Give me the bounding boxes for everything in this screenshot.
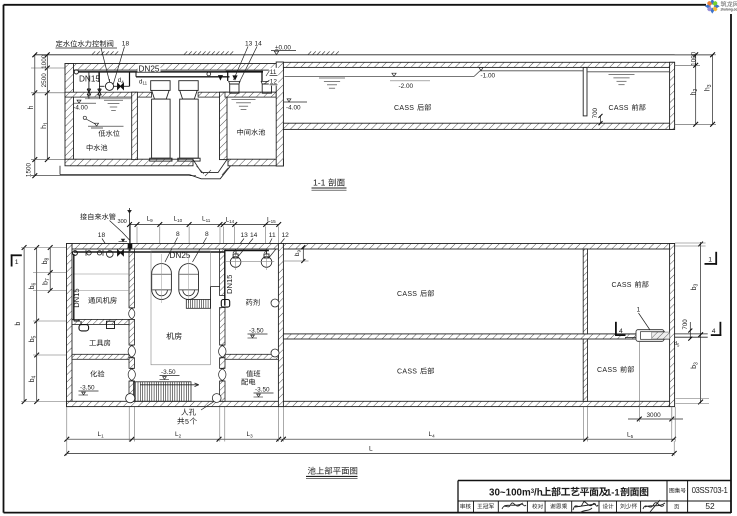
svg-text:30~100m3/h: 30~100m3/h (489, 487, 543, 498)
svg-text:2500: 2500 (41, 73, 48, 88)
svg-text:-3.50: -3.50 (80, 385, 95, 392)
svg-text:CASS: CASS (397, 291, 417, 298)
svg-text:18: 18 (98, 232, 106, 239)
svg-text:8: 8 (176, 231, 180, 238)
svg-text:1-1: 1-1 (606, 486, 620, 497)
svg-text:52: 52 (705, 501, 715, 511)
svg-text:CASS: CASS (609, 105, 629, 112)
svg-text:zhulong.com: zhulong.com (721, 7, 737, 11)
svg-text:11: 11 (270, 69, 277, 76)
svg-text:5: 5 (185, 419, 189, 426)
svg-text:CASS: CASS (597, 367, 617, 374)
svg-text:1-1: 1-1 (313, 178, 326, 188)
svg-text:1: 1 (708, 256, 712, 263)
svg-text:DN15: DN15 (79, 74, 100, 83)
svg-text:d5: d5 (674, 341, 680, 347)
svg-text:CASS: CASS (397, 369, 417, 376)
svg-text:4: 4 (712, 328, 716, 335)
svg-text:-3.50: -3.50 (255, 387, 270, 394)
svg-text:13: 13 (245, 40, 253, 47)
svg-text:-4.00: -4.00 (286, 105, 301, 112)
svg-text:700: 700 (592, 107, 599, 118)
svg-text:L: L (369, 446, 373, 453)
svg-text:DN15: DN15 (72, 288, 81, 307)
svg-text:03SS703-1: 03SS703-1 (692, 486, 728, 495)
svg-text:1: 1 (15, 259, 19, 266)
svg-text:14: 14 (250, 232, 258, 239)
svg-text:18: 18 (122, 40, 130, 47)
svg-text:1500: 1500 (25, 162, 32, 177)
svg-text:h: h (28, 105, 35, 109)
svg-text:13: 13 (241, 232, 249, 239)
svg-text:CASS: CASS (394, 105, 414, 112)
svg-text:-1.00: -1.00 (481, 73, 496, 80)
svg-text:DN15: DN15 (225, 275, 234, 294)
svg-text:12: 12 (282, 232, 290, 239)
svg-text:CASS: CASS (612, 282, 632, 289)
svg-text:-3.50: -3.50 (161, 369, 176, 376)
svg-text:3000: 3000 (647, 412, 662, 419)
svg-text:11: 11 (269, 232, 276, 239)
svg-text:-4.00: -4.00 (73, 104, 88, 111)
svg-text:-2.00: -2.00 (399, 83, 414, 90)
svg-text:700: 700 (682, 319, 689, 330)
svg-text:DN25: DN25 (170, 251, 191, 260)
svg-text:14: 14 (255, 40, 263, 47)
svg-text:DN25: DN25 (139, 64, 160, 73)
svg-text:b: b (15, 322, 22, 326)
svg-text:8: 8 (205, 231, 209, 238)
svg-text:1000: 1000 (690, 51, 697, 66)
svg-text:300: 300 (117, 219, 126, 225)
svg-text:-3.50: -3.50 (249, 328, 264, 335)
svg-text:1: 1 (637, 307, 641, 314)
svg-text:4: 4 (619, 328, 623, 335)
svg-text:1000: 1000 (41, 54, 48, 69)
